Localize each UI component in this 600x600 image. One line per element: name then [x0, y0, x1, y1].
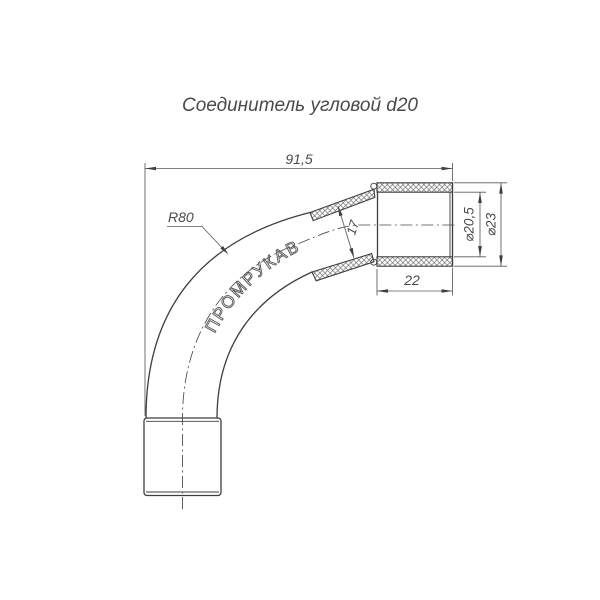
dim-socket-outer-diameter-label: ⌀23 [484, 212, 499, 236]
socket-top-wall [377, 183, 453, 192]
drawing-title: Соединитель угловой d20 [182, 95, 418, 116]
dim-overall-length-label: 91,5 [285, 151, 312, 167]
dim-socket-length-label: 22 [403, 272, 420, 288]
socket-bottom-wall [377, 257, 453, 266]
dim-socket-inner-diameter-label: ⌀20,5 [462, 207, 477, 242]
dim-bend-radius-label: R80 [168, 209, 194, 225]
technical-drawing: Соединитель угловой d20 91,5 [0, 0, 600, 600]
drawing-background [0, 0, 600, 600]
